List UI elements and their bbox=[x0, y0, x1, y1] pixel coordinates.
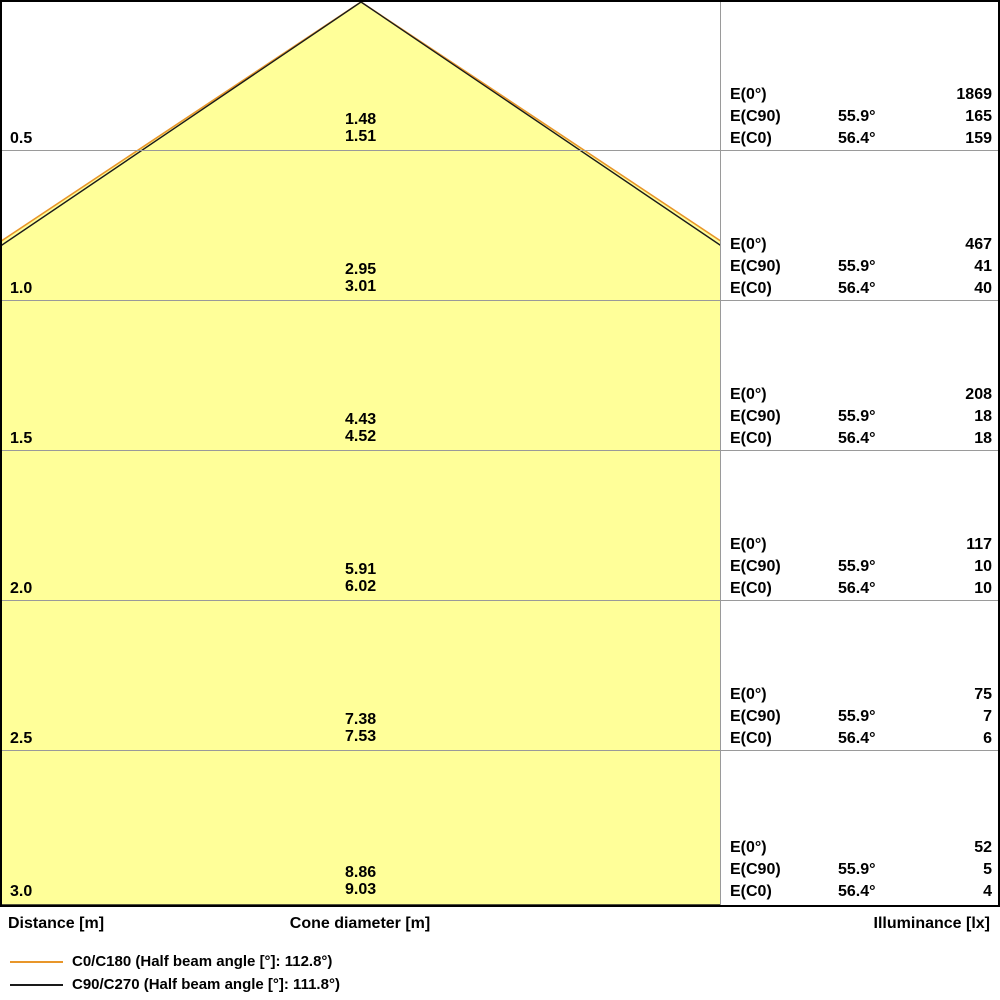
legend-entry-c90-c270: C90/C270 (Half beam angle [°]: 111.8°) bbox=[0, 975, 1000, 995]
axis-title-cone-diameter: Cone diameter [m] bbox=[0, 915, 720, 935]
cone-diameter-values: 7.38 7.53 bbox=[345, 711, 376, 745]
ec0-angle: 56.4° bbox=[838, 130, 932, 148]
illuminance-cell: E(0°)52 E(C90)55.9°5 E(C0)56.4°4 bbox=[730, 837, 992, 903]
illuminance-cell: E(0°)208 E(C90)55.9°18 E(C0)56.4°18 bbox=[730, 384, 992, 450]
cone-diameter-c90: 4.43 bbox=[345, 411, 376, 428]
distance-tick: 1.5 bbox=[10, 430, 32, 448]
ec0-label: E(C0) bbox=[730, 883, 838, 901]
e0-value: 467 bbox=[932, 236, 992, 254]
distance-tick: 0.5 bbox=[10, 130, 32, 148]
e0-value: 208 bbox=[932, 386, 992, 404]
ec90-label: E(C90) bbox=[730, 558, 838, 576]
e0-label: E(0°) bbox=[730, 386, 838, 404]
gridline-1.5m bbox=[2, 450, 998, 451]
ec90-angle: 55.9° bbox=[838, 558, 932, 576]
illuminance-cell: E(0°)1869 E(C90)55.9°165 E(C0)56.4°159 bbox=[730, 84, 992, 150]
cone-diameter-values: 1.48 1.51 bbox=[345, 111, 376, 145]
ec90-value: 10 bbox=[932, 558, 992, 576]
ec90-value: 7 bbox=[932, 708, 992, 726]
ec90-angle: 55.9° bbox=[838, 258, 932, 276]
illuminance-cell: E(0°)467 E(C90)55.9°41 E(C0)56.4°40 bbox=[730, 234, 992, 300]
legend-label-c90-c270: C90/C270 (Half beam angle [°]: 111.8°) bbox=[72, 976, 340, 993]
ec90-angle: 55.9° bbox=[838, 861, 932, 879]
ec90-value: 165 bbox=[932, 108, 992, 126]
e0-value: 117 bbox=[932, 536, 992, 554]
legend-label-c0-c180: C0/C180 (Half beam angle [°]: 112.8°) bbox=[72, 953, 332, 970]
cone-diameter-c0: 4.52 bbox=[345, 428, 376, 445]
ec0-label: E(C0) bbox=[730, 280, 838, 298]
illuminance-cell: E(0°)117 E(C90)55.9°10 E(C0)56.4°10 bbox=[730, 534, 992, 600]
ec0-value: 4 bbox=[932, 883, 992, 901]
ec90-label: E(C90) bbox=[730, 258, 838, 276]
ec0-angle: 56.4° bbox=[838, 280, 932, 298]
illuminance-cell: E(0°)75 E(C90)55.9°7 E(C0)56.4°6 bbox=[730, 684, 992, 750]
cone-diameter-c0: 6.02 bbox=[345, 578, 376, 595]
e0-label: E(0°) bbox=[730, 536, 838, 554]
gridline-1.0m bbox=[2, 300, 998, 301]
cone-diameter-c90: 2.95 bbox=[345, 261, 376, 278]
ec90-angle: 55.9° bbox=[838, 408, 932, 426]
gridline-2.0m bbox=[2, 600, 998, 601]
distance-tick: 3.0 bbox=[10, 883, 32, 901]
ec0-angle: 56.4° bbox=[838, 883, 932, 901]
panel-divider bbox=[720, 2, 721, 905]
e0-label: E(0°) bbox=[730, 86, 838, 104]
distance-tick: 1.0 bbox=[10, 280, 32, 298]
cone-diameter-c90: 8.86 bbox=[345, 864, 376, 881]
ec90-label: E(C90) bbox=[730, 108, 838, 126]
distance-tick: 2.0 bbox=[10, 580, 32, 598]
e0-value: 1869 bbox=[932, 86, 992, 104]
ec0-value: 10 bbox=[932, 580, 992, 598]
cone-diameter-values: 2.95 3.01 bbox=[345, 261, 376, 295]
ec0-label: E(C0) bbox=[730, 580, 838, 598]
ec0-value: 6 bbox=[932, 730, 992, 748]
cone-diameter-c0: 3.01 bbox=[345, 278, 376, 295]
light-cone-chart: 0.5 1.0 1.5 2.0 2.5 3.0 1.48 1.51 2.95 3… bbox=[0, 0, 1000, 907]
distance-tick: 2.5 bbox=[10, 730, 32, 748]
ec90-value: 18 bbox=[932, 408, 992, 426]
legend-line-black bbox=[10, 984, 63, 986]
ec0-value: 18 bbox=[932, 430, 992, 448]
ec0-value: 159 bbox=[932, 130, 992, 148]
ec90-value: 5 bbox=[932, 861, 992, 879]
ec90-label: E(C90) bbox=[730, 861, 838, 879]
cone-diameter-values: 8.86 9.03 bbox=[345, 864, 376, 898]
ec90-angle: 55.9° bbox=[838, 108, 932, 126]
ec0-angle: 56.4° bbox=[838, 730, 932, 748]
e0-value: 75 bbox=[932, 686, 992, 704]
ec0-value: 40 bbox=[932, 280, 992, 298]
ec0-angle: 56.4° bbox=[838, 430, 932, 448]
axis-title-illuminance: Illuminance [lx] bbox=[874, 915, 990, 935]
ec90-value: 41 bbox=[932, 258, 992, 276]
gridline-2.5m bbox=[2, 750, 998, 751]
cone-diameter-c0: 9.03 bbox=[345, 881, 376, 898]
ec0-label: E(C0) bbox=[730, 430, 838, 448]
ec0-label: E(C0) bbox=[730, 730, 838, 748]
cone-diameter-values: 4.43 4.52 bbox=[345, 411, 376, 445]
cone-diameter-values: 5.91 6.02 bbox=[345, 561, 376, 595]
ec90-label: E(C90) bbox=[730, 708, 838, 726]
legend-entry-c0-c180: C0/C180 (Half beam angle [°]: 112.8°) bbox=[0, 952, 1000, 972]
cone-diameter-c0: 1.51 bbox=[345, 128, 376, 145]
ec0-label: E(C0) bbox=[730, 130, 838, 148]
cone-diameter-c0: 7.53 bbox=[345, 728, 376, 745]
gridline-0.5m bbox=[2, 150, 998, 151]
ec90-label: E(C90) bbox=[730, 408, 838, 426]
ec0-angle: 56.4° bbox=[838, 580, 932, 598]
cone-diameter-c90: 7.38 bbox=[345, 711, 376, 728]
e0-label: E(0°) bbox=[730, 686, 838, 704]
e0-label: E(0°) bbox=[730, 839, 838, 857]
legend-line-orange bbox=[10, 961, 63, 963]
e0-label: E(0°) bbox=[730, 236, 838, 254]
cone-diameter-c90: 5.91 bbox=[345, 561, 376, 578]
cone-diameter-c90: 1.48 bbox=[345, 111, 376, 128]
e0-value: 52 bbox=[932, 839, 992, 857]
ec90-angle: 55.9° bbox=[838, 708, 932, 726]
